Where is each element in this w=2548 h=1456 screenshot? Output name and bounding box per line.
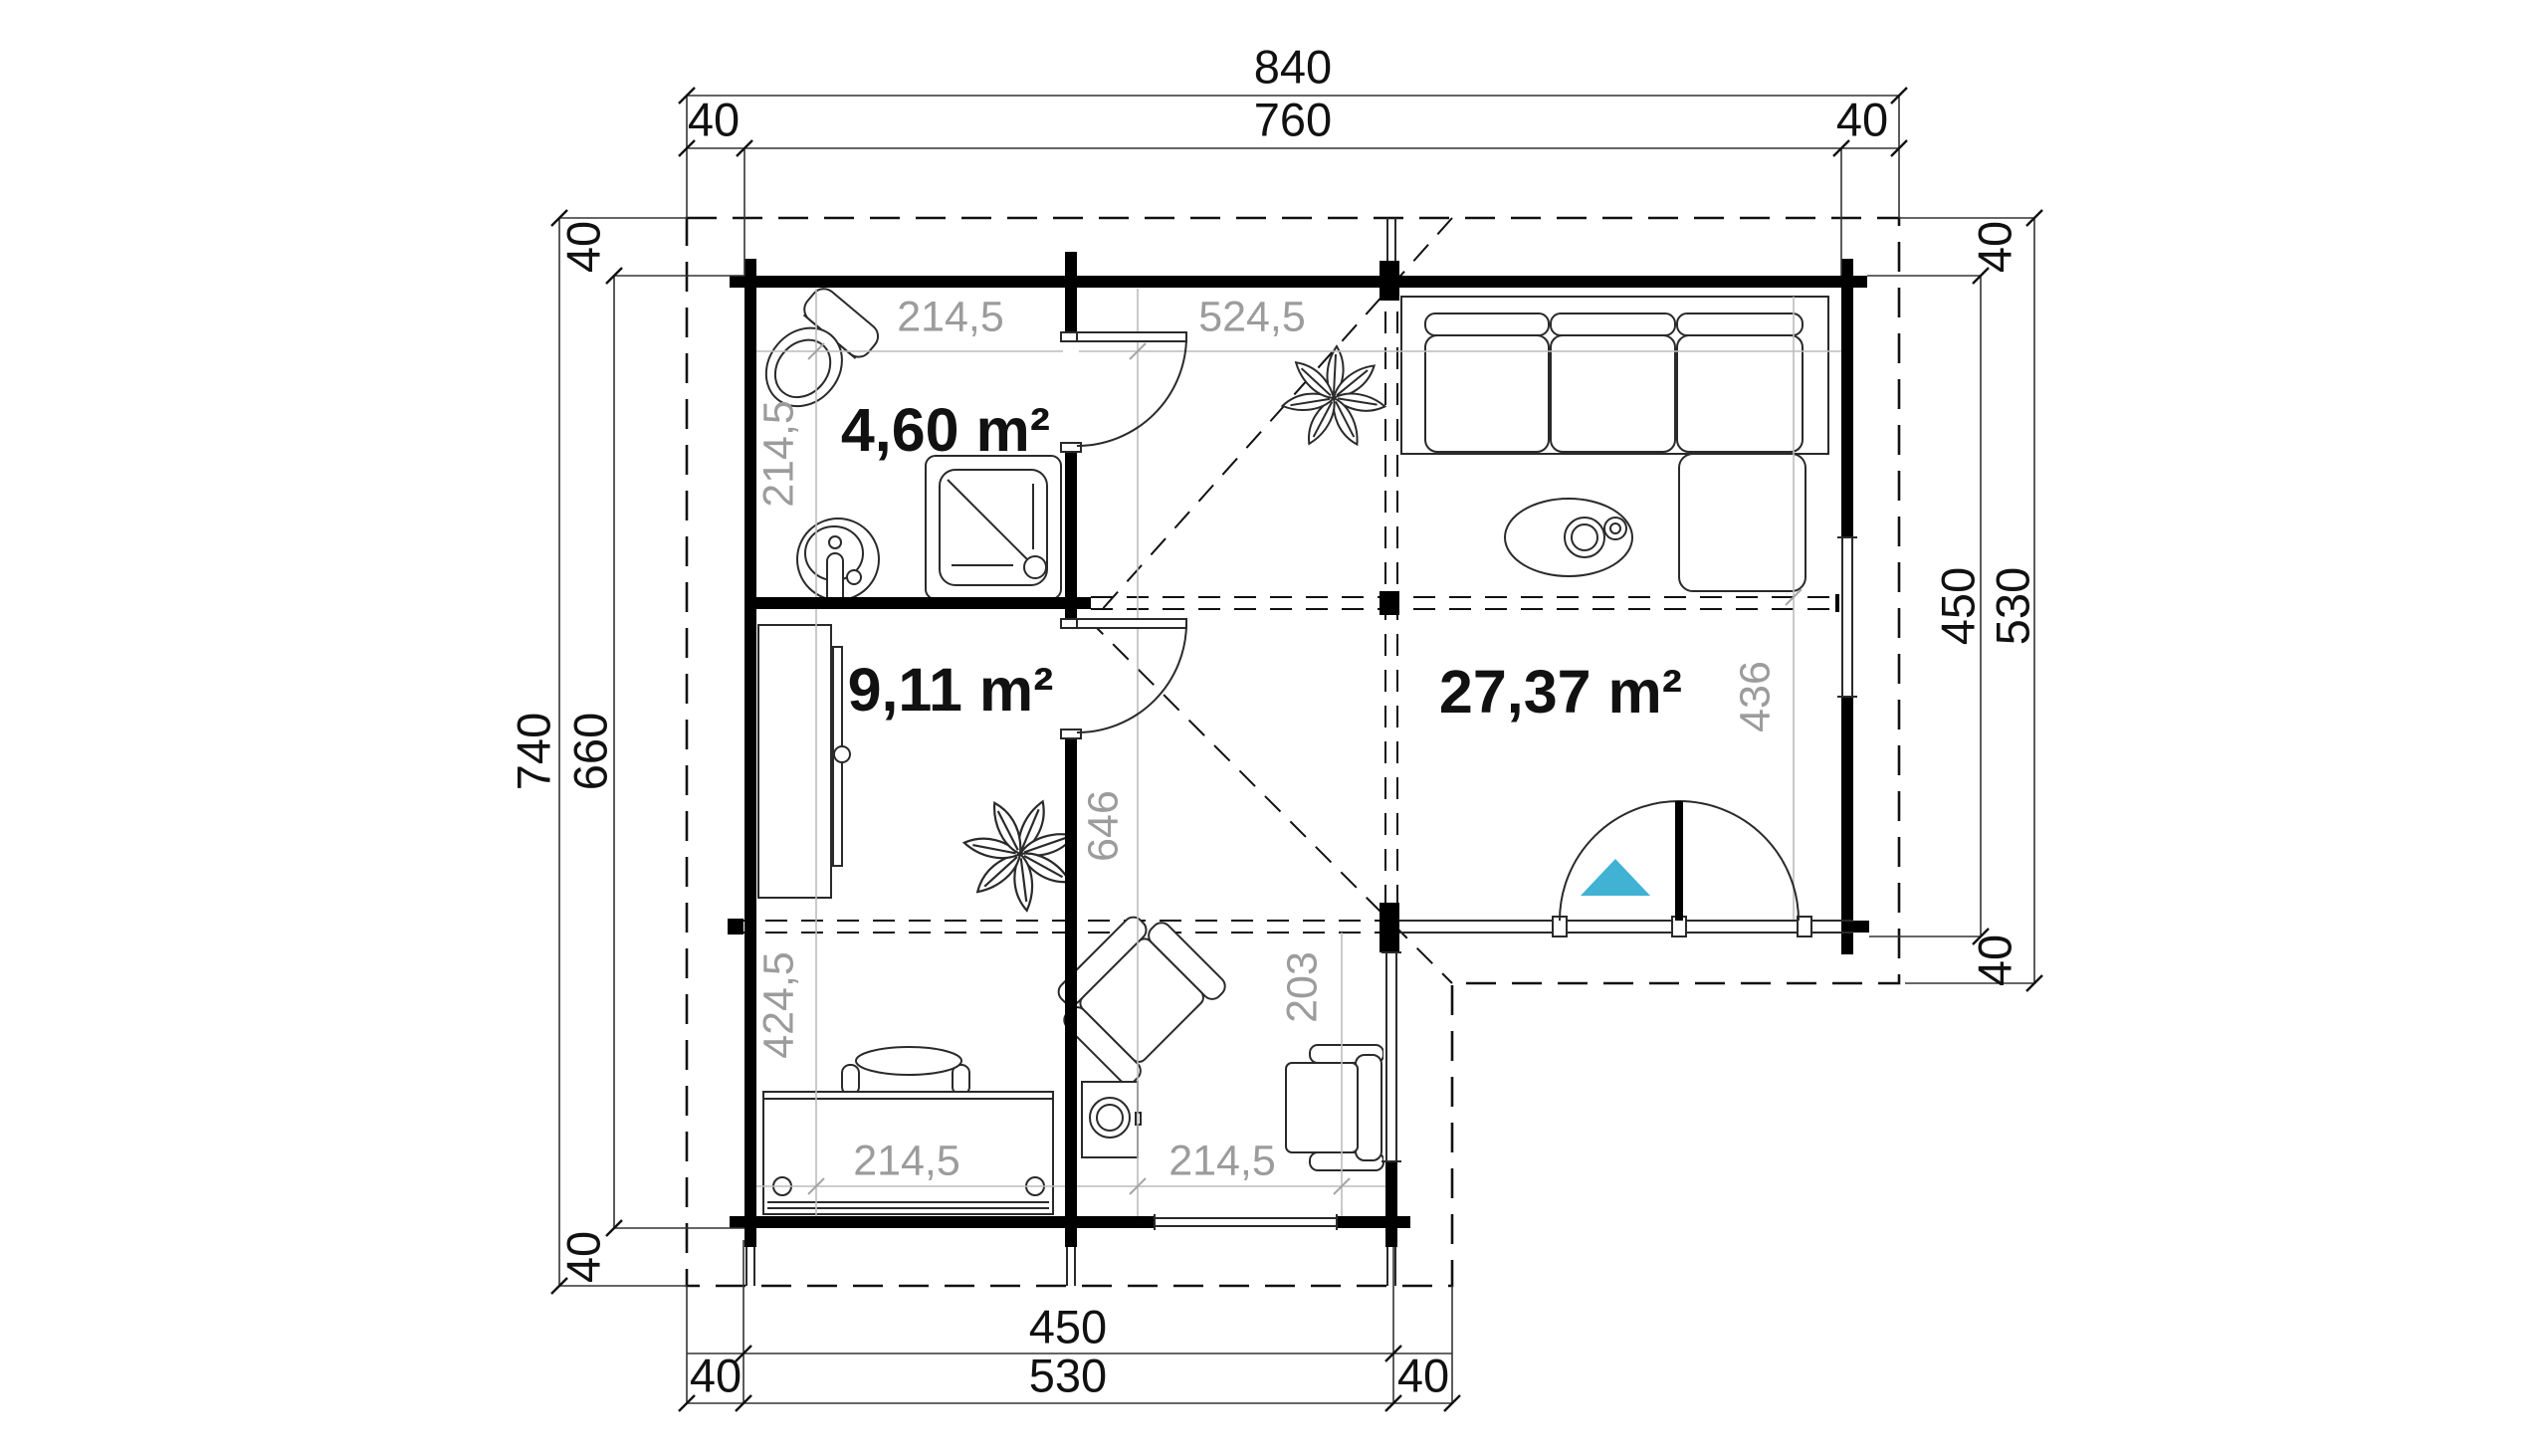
window-bottom-wall (1155, 1214, 1337, 1230)
dim-label-overhang: 40 (556, 1231, 609, 1283)
window-right-wall (1837, 537, 1857, 697)
dim-label-hall-living-width: 524,5 (1198, 293, 1306, 340)
dim-label-hall-depth: 646 (1079, 790, 1127, 862)
dim-label-total-height: 740 (507, 713, 559, 790)
dim-label-total-width: 840 (1254, 40, 1332, 93)
sink (797, 519, 879, 607)
room-label-bathroom: 4,60 m² (841, 396, 1050, 464)
wardrobe (758, 625, 850, 898)
armchair (1286, 1045, 1383, 1170)
dim-label-bedroom-depth: 424,5 (754, 951, 802, 1059)
dim-label-right-inner: 450 (1931, 567, 1984, 645)
dim-label-overhang: 40 (556, 221, 609, 273)
bedroom-door (1061, 619, 1186, 738)
dim-label-right-total: 530 (1986, 567, 2038, 645)
dim-label-hall-width: 214,5 (1168, 1137, 1276, 1184)
dim-label-overhang: 40 (1836, 93, 1888, 145)
dim-label-living-width: 436 (1731, 661, 1779, 732)
entrance-marker (1581, 859, 1650, 896)
coffee-table (1505, 499, 1632, 576)
desk-chair (842, 1047, 969, 1095)
dim-label-overhang: 40 (1397, 1349, 1449, 1401)
windows (1155, 537, 1857, 1230)
dim-label-porch-depth: 203 (1278, 951, 1326, 1023)
dim-label-bottom-inner: 450 (1029, 1300, 1107, 1352)
dim-label-desk-width: 214,5 (853, 1137, 960, 1184)
dim-label-overhang: 40 (688, 93, 740, 145)
dim-label-bath-depth: 214,5 (754, 400, 802, 508)
room-label-living: 27,37 m² (1439, 658, 1682, 726)
plant-icon (1281, 346, 1385, 448)
dim-label-inner-height: 660 (563, 713, 616, 790)
dim-label-inner-width: 760 (1254, 93, 1332, 145)
floor-plan-drawing: 840 40 760 40 740 660 40 40 450 530 40 4… (0, 0, 2548, 1456)
dim-label-overhang: 40 (690, 1349, 742, 1401)
washing-machine (1082, 1082, 1141, 1157)
bathroom-door (1061, 332, 1186, 452)
dim-label-bath-width: 214,5 (897, 293, 1004, 340)
floor-plan-page: 840 40 760 40 740 660 40 40 450 530 40 4… (0, 0, 2548, 1456)
room-label-bedroom: 9,11 m² (848, 656, 1054, 724)
shower (926, 456, 1061, 599)
window-lower-right-wall (1381, 952, 1401, 1161)
dim-label-overhang: 40 (1968, 935, 2020, 986)
dim-label-overhang: 40 (1968, 221, 2020, 273)
dim-label-bottom-total: 530 (1029, 1349, 1107, 1401)
terrace-doors (1399, 801, 1853, 936)
